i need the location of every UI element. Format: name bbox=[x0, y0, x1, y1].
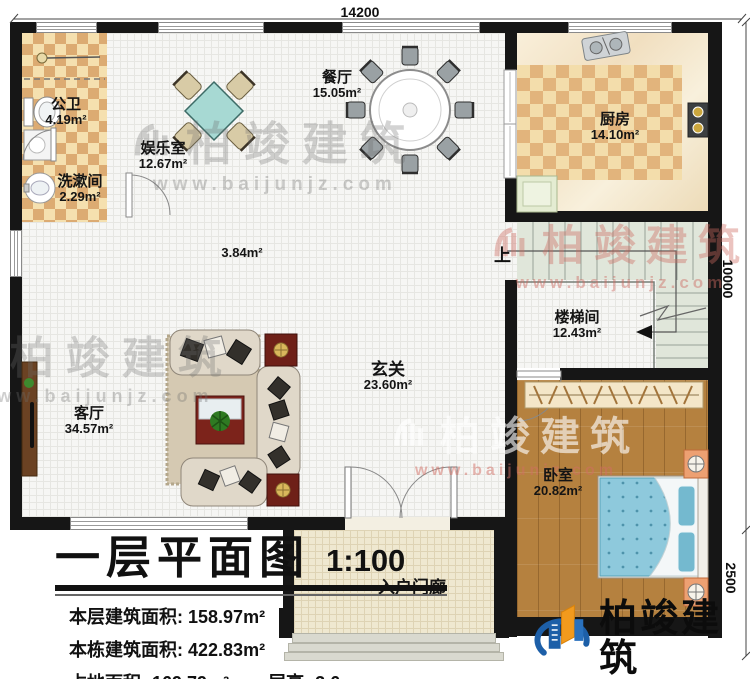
sink-icon bbox=[24, 173, 55, 203]
kitchen-sink-icon bbox=[581, 31, 630, 61]
room-label-corridor-area: 3.84m² bbox=[221, 246, 262, 260]
room-label-dining: 餐厅15.05m² bbox=[313, 70, 361, 100]
stove-icon bbox=[688, 103, 708, 137]
plan-title: 一层平面图 bbox=[55, 534, 310, 582]
floor-plan-canvas: 柏竣建筑 www.baijunjz.com 柏竣建筑 www.baijunjz.… bbox=[0, 0, 750, 679]
stat-footprint-and-height: 占地面积: 169.79m² 层高: 3.6m bbox=[69, 669, 447, 679]
entry-double-door bbox=[345, 467, 457, 518]
stairs-up-label: 上 bbox=[494, 241, 511, 266]
coffee-table bbox=[196, 396, 244, 444]
title-block: 一层平面图 1:100 本层建筑面积: 158.97m² 本栋建筑面积: 422… bbox=[55, 534, 447, 679]
plan-scale: 1:100 bbox=[326, 540, 405, 582]
room-label-gameroom: 娱乐室12.67m² bbox=[139, 141, 187, 171]
side-table-bottom bbox=[267, 474, 299, 506]
gameroom-door bbox=[126, 173, 170, 217]
room-label-kitchen: 厨房14.10m² bbox=[591, 112, 639, 142]
dimension-right-lower: 2500 bbox=[723, 553, 739, 603]
bed bbox=[598, 476, 708, 578]
brand-logo-icon bbox=[532, 599, 593, 665]
room-label-bedroom: 卧室20.82m² bbox=[534, 468, 582, 498]
room-label-stairwell: 楼梯间12.43m² bbox=[553, 310, 601, 340]
kitchen-counter bbox=[517, 176, 557, 212]
stairs-direction-arrow bbox=[507, 251, 706, 339]
stairs bbox=[517, 222, 708, 368]
wardrobe bbox=[525, 382, 703, 408]
game-table bbox=[173, 71, 255, 151]
title-rule-thin bbox=[55, 594, 447, 596]
room-label-bathroom: 公卫4.19m² bbox=[45, 97, 86, 127]
dimension-right-upper: 10000 bbox=[720, 249, 736, 309]
room-label-washroom: 洗漱间2.29m² bbox=[57, 174, 102, 204]
nightstand-top bbox=[684, 450, 708, 478]
stat-floor-area: 本层建筑面积: 158.97m² bbox=[69, 603, 447, 629]
dining-table bbox=[347, 47, 473, 173]
side-table-top bbox=[265, 334, 297, 366]
dimension-top: 14200 bbox=[325, 4, 395, 20]
brand-name: 柏竣建筑 bbox=[599, 599, 750, 679]
stat-building-area: 本栋建筑面积: 422.83m² bbox=[69, 636, 447, 662]
kitchen-sliding-door bbox=[504, 70, 516, 178]
room-label-living: 客厅34.57m² bbox=[65, 406, 113, 436]
title-rule-thick bbox=[55, 585, 447, 591]
room-label-foyer: 玄关23.60m² bbox=[364, 362, 412, 392]
brand-logo: 柏竣建筑 www.baijunjz.com bbox=[532, 599, 750, 679]
shower-icon bbox=[24, 53, 105, 79]
tv-cabinet bbox=[22, 362, 37, 476]
